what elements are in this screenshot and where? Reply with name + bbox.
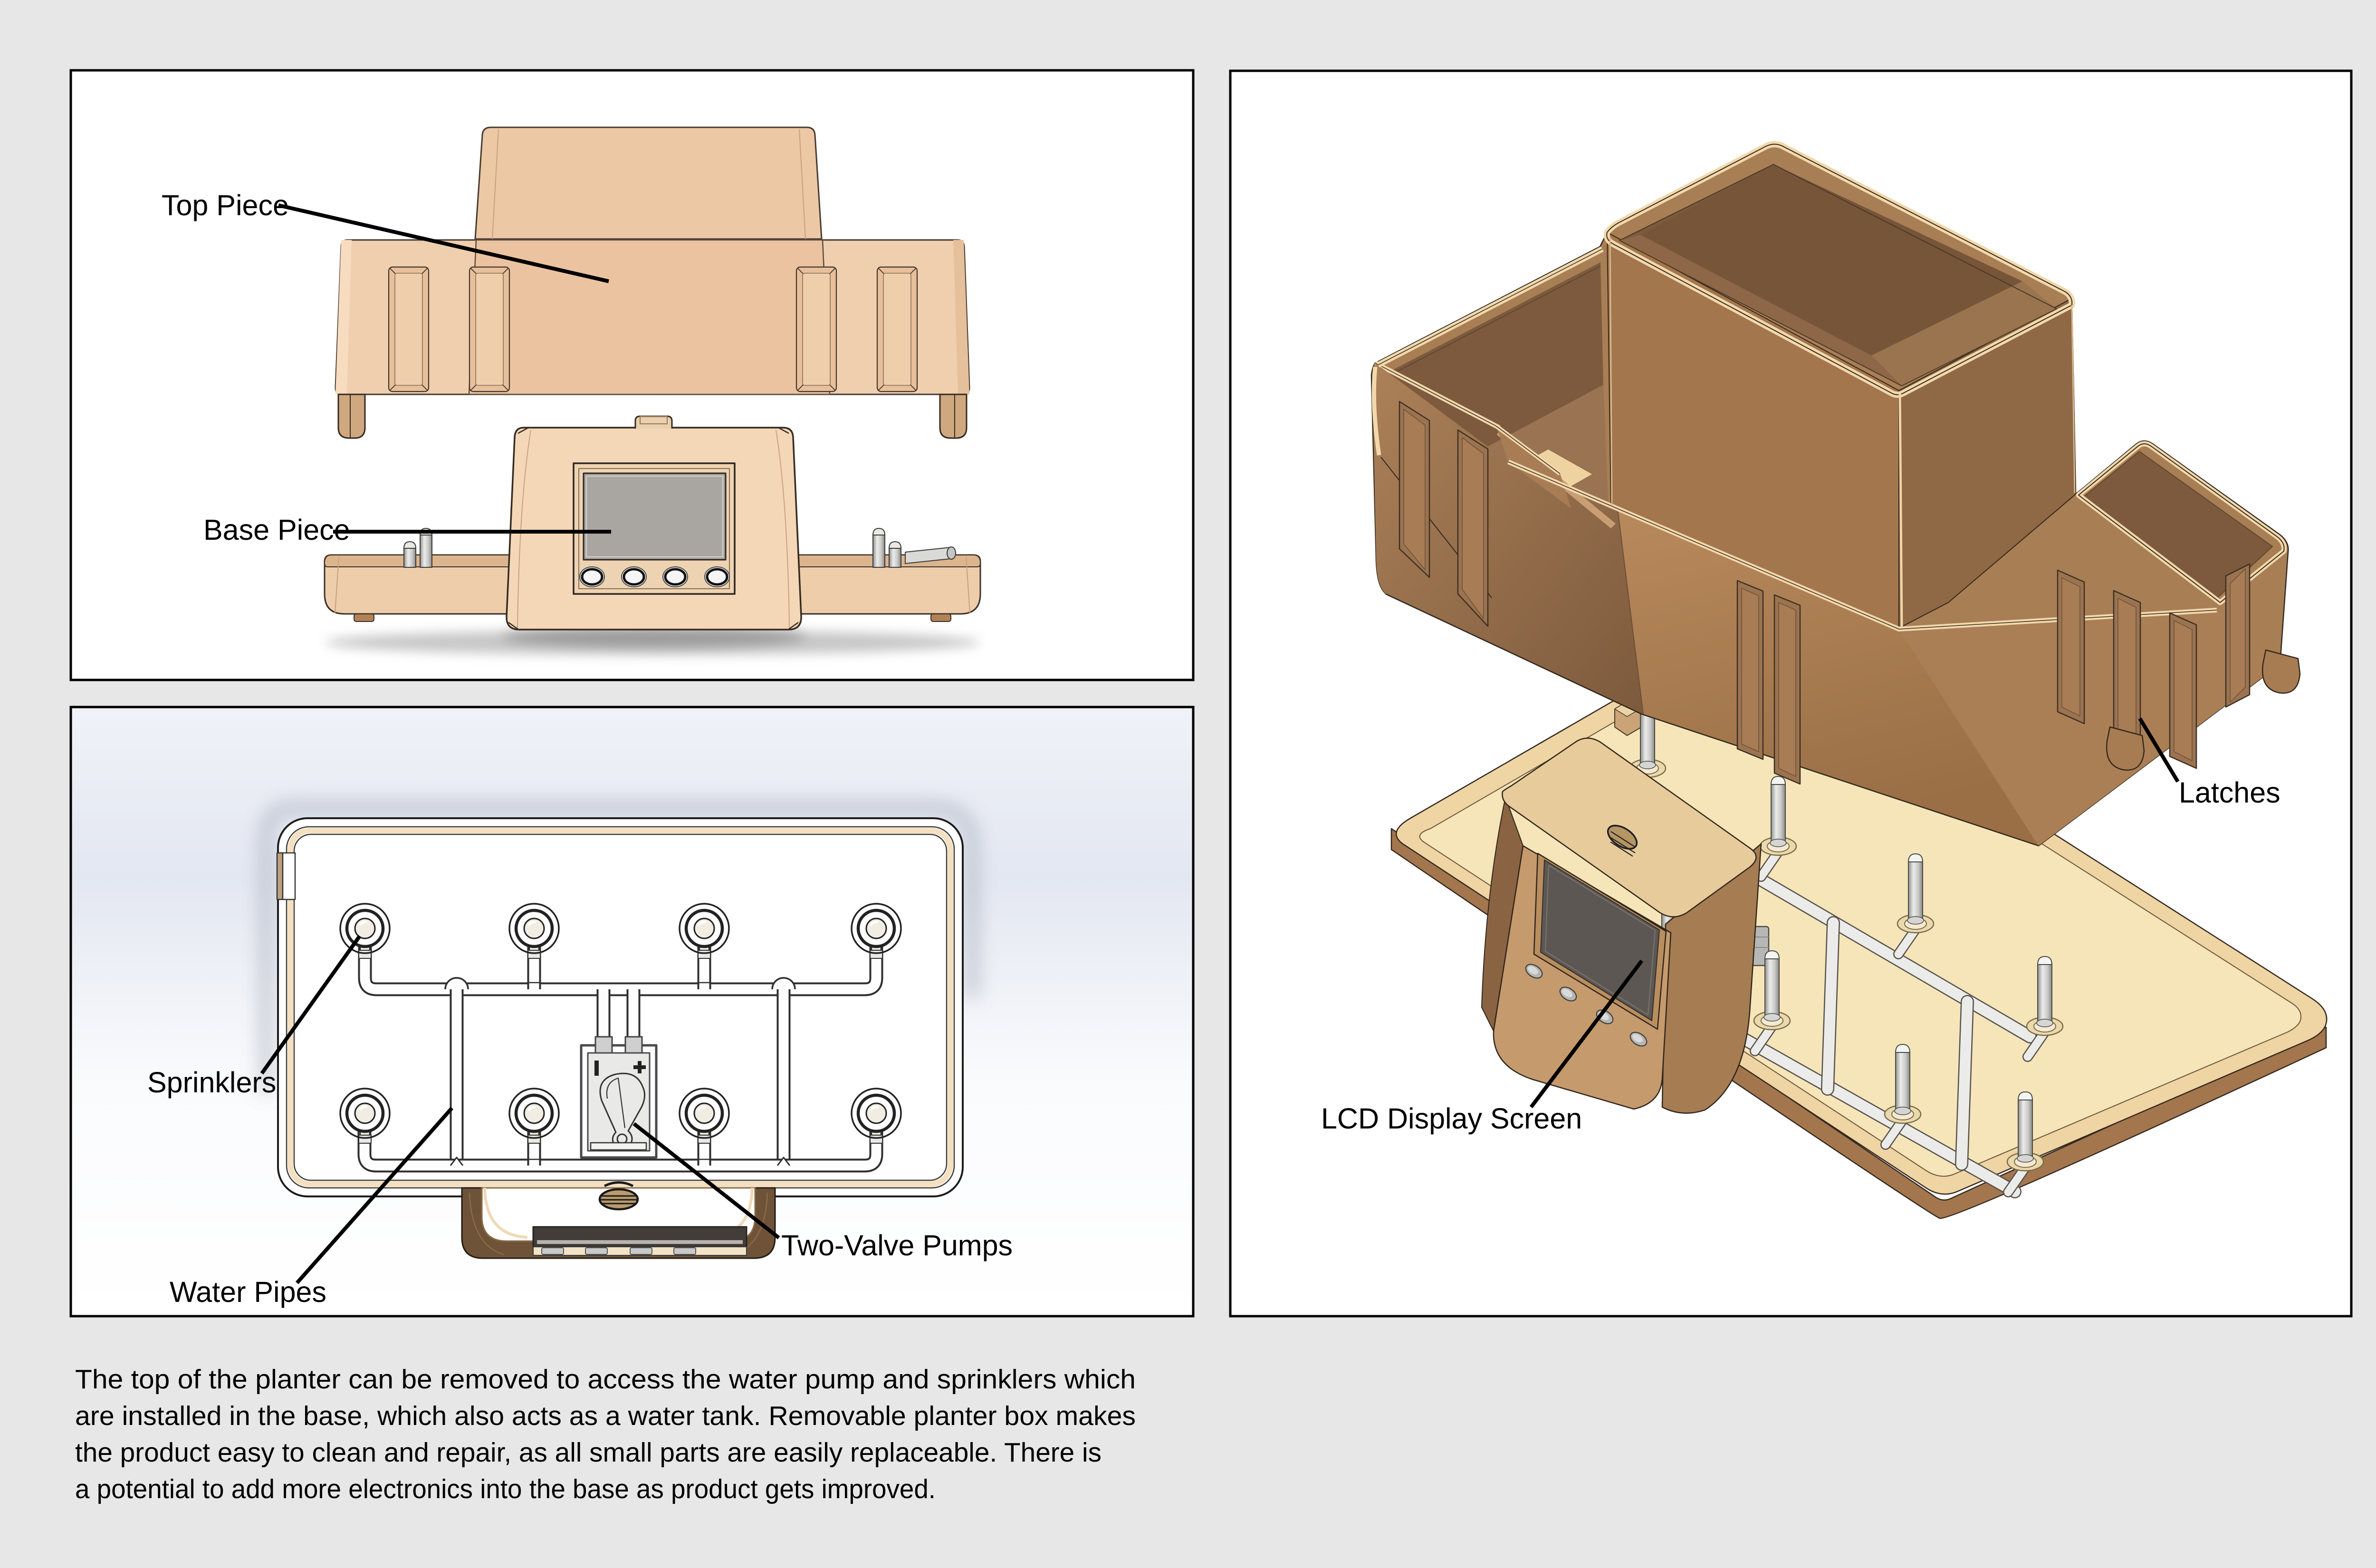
svg-text:LCD Display Screen: LCD Display Screen (1321, 1102, 1582, 1135)
svg-text:Water Pipes: Water Pipes (170, 1276, 326, 1308)
svg-text:Latches: Latches (2179, 776, 2280, 809)
svg-text:a potential to add more electr: a potential to add more electronics into… (75, 1474, 936, 1504)
svg-text:The top of the planter can be: The top of the planter can be removed to… (75, 1364, 1136, 1395)
svg-text:Sprinklers: Sprinklers (147, 1066, 276, 1099)
svg-text:Base Piece: Base Piece (203, 514, 350, 546)
svg-text:are installed in the base, whi: are installed in the base, which also ac… (75, 1401, 1136, 1431)
svg-text:the product easy to clean and: the product easy to clean and repair, as… (75, 1437, 1102, 1468)
svg-text:Two-Valve Pumps: Two-Valve Pumps (781, 1229, 1013, 1262)
svg-text:Top Piece: Top Piece (162, 189, 289, 221)
